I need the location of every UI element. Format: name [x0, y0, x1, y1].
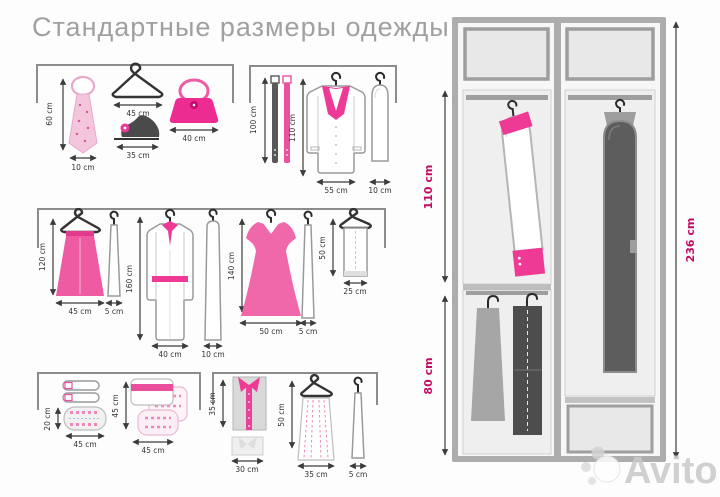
trousers-hanger [340, 209, 371, 228]
dim-label-stack-height: 45 cm [111, 394, 120, 417]
dress-body [241, 222, 301, 316]
robe-hook [166, 210, 174, 222]
dark-trousers-bag [513, 294, 542, 435]
rolled-belts-figure [63, 381, 99, 402]
shirt-under [232, 437, 263, 455]
belts-figure: 100 cm [249, 76, 291, 163]
dim-label-hskirt-width: 35 cm [304, 470, 327, 479]
robe-cover-hook [210, 210, 217, 221]
hskirt-hanger [301, 375, 332, 396]
dim-label-dress-cover: 5 cm [299, 327, 318, 336]
skirt-cover-body [108, 225, 120, 296]
panel-accessories: 60 cm 10 cm 45 cm [37, 64, 233, 172]
robe-cover-body [205, 221, 221, 340]
dim-label-upper-section: 110 cm [422, 165, 435, 210]
coat-figure: 110 cm 55 cm [288, 73, 365, 195]
sweater-stack-figure: 45 cm 45 cm [111, 379, 187, 455]
dim-label-tie-height: 60 cm [45, 102, 54, 125]
belt-dark-buckle [271, 76, 279, 83]
rod-right [568, 95, 652, 100]
dim-label-cover-width: 10 cm [368, 186, 391, 195]
dim-label-pile-height: 20 cm [43, 407, 52, 430]
hskirt-body [298, 398, 334, 460]
diagram-svg: 60 cm 10 cm 45 cm [0, 0, 720, 497]
panel-outerwear: 100 cm 110 cm [249, 66, 396, 195]
narrow-cover-hook [355, 378, 362, 393]
dim-label-handbag-width: 40 cm [182, 134, 205, 143]
skirt-cover-figure: 5 cm [105, 212, 124, 316]
rod-left-upper [466, 95, 548, 100]
dim-label-robe-width: 40 cm [158, 350, 181, 359]
panel-shirts: 35 cm 30 cm 50 cm [208, 373, 377, 479]
dim-label-dress-height: 140 cm [227, 252, 236, 280]
folded-trousers-figure: 50 cm 25 cm [318, 209, 371, 296]
wardrobe: 110 cm 80 cm 236 cm [422, 17, 697, 462]
hanger-icon: 45 cm [113, 64, 163, 118]
dim-label-lower-section: 80 cm [422, 357, 435, 394]
bottom-drawer [568, 406, 652, 452]
skirt-figure: 120 cm 45 cm [38, 209, 104, 316]
cover-body [372, 85, 388, 161]
robe-figure: 160 cm 40 cm [125, 210, 193, 359]
dim-label-pile-width: 45 cm [73, 440, 96, 449]
top-shelf-right [567, 29, 653, 79]
infographic-standard-clothing-sizes: Стандартные размеры одежды 60 cm 10 cm [0, 0, 720, 497]
dim-label-shirt-height: 35 cm [208, 392, 217, 415]
stack-bottom-item [138, 410, 178, 435]
dim-label-trousers-height: 50 cm [318, 236, 327, 259]
shirt-placket [246, 385, 252, 430]
narrow-cover-figure: 5 cm [349, 378, 368, 479]
skirt-waistband [66, 231, 94, 236]
dim-label-hskirt-height: 50 cm [277, 403, 286, 426]
dim-label-tie-width: 10 cm [71, 163, 94, 172]
dim-label-robe-cover: 10 cm [201, 350, 224, 359]
dim-label-coat-width: 55 cm [324, 186, 347, 195]
dim-label-trousers-width: 25 cm [343, 287, 366, 296]
wardrobe-divider [554, 23, 561, 456]
dress-cover-hook [305, 212, 312, 224]
coat-hook [332, 73, 340, 85]
tie-body [69, 94, 97, 153]
narrow-cover-body [352, 393, 364, 458]
handbag-figure: 40 cm [170, 80, 218, 143]
dim-label-narrow-cover: 5 cm [349, 470, 368, 479]
shoes-figure: 35 cm [114, 115, 159, 160]
hanging-skirt-figure: 50 cm 35 cm [277, 375, 334, 479]
belt-pink-buckle [283, 76, 291, 83]
knit-pile-figure: 20 cm 45 cm [43, 407, 106, 449]
left-section-divider [463, 284, 551, 290]
dim-label-skirt-cover: 5 cm [105, 307, 124, 316]
skirt-hanger [61, 209, 100, 232]
robe-cover-figure: 10 cm [201, 210, 224, 359]
dim-label-stack-width: 45 cm [141, 446, 164, 455]
dim-label-skirt-height: 120 cm [38, 243, 47, 271]
tie-figure: 60 cm 10 cm [45, 77, 97, 172]
dress-cover-body [302, 225, 314, 318]
dim-label-robe-height: 160 cm [125, 265, 134, 293]
tie-knot [72, 77, 94, 95]
robe-belt [152, 276, 188, 282]
panel-folded: 20 cm 45 cm 45 cm 45 cm [38, 373, 200, 455]
dim-label-belt-length: 100 cm [249, 106, 258, 134]
folded-shirt-figure: 35 cm 30 cm [208, 377, 266, 474]
top-shelf-left [465, 29, 548, 79]
watermark: Avito [581, 447, 718, 493]
dim-label-shirt-width: 30 cm [235, 465, 258, 474]
dress-hook [267, 210, 275, 222]
dress-figure: 140 cm 50 cm [227, 210, 302, 336]
dress-cover-figure: 5 cm [299, 212, 318, 336]
dim-label-dress-width: 50 cm [259, 327, 282, 336]
cover-hook [376, 73, 384, 85]
right-bottom-rail [565, 397, 655, 403]
gray-cover-body [471, 308, 505, 421]
dim-label-skirt-width: 45 cm [68, 307, 91, 316]
garment-cover-figure: 10 cm [368, 73, 391, 195]
skirt-cover-hook [111, 212, 118, 224]
dim-label-coat-height: 110 cm [288, 114, 297, 142]
panel-dresses: 120 cm 45 cm 5 cm 160 cm [38, 209, 385, 359]
stack-front-item [131, 379, 173, 405]
belt-dark [272, 83, 278, 163]
dark-garment-bag [604, 100, 637, 372]
dim-label-total-height: 236 cm [684, 218, 697, 263]
white-bag-pink-bottom [513, 248, 546, 277]
avito-wordmark: Avito [624, 450, 718, 492]
dim-label-shoes-width: 35 cm [126, 151, 149, 160]
